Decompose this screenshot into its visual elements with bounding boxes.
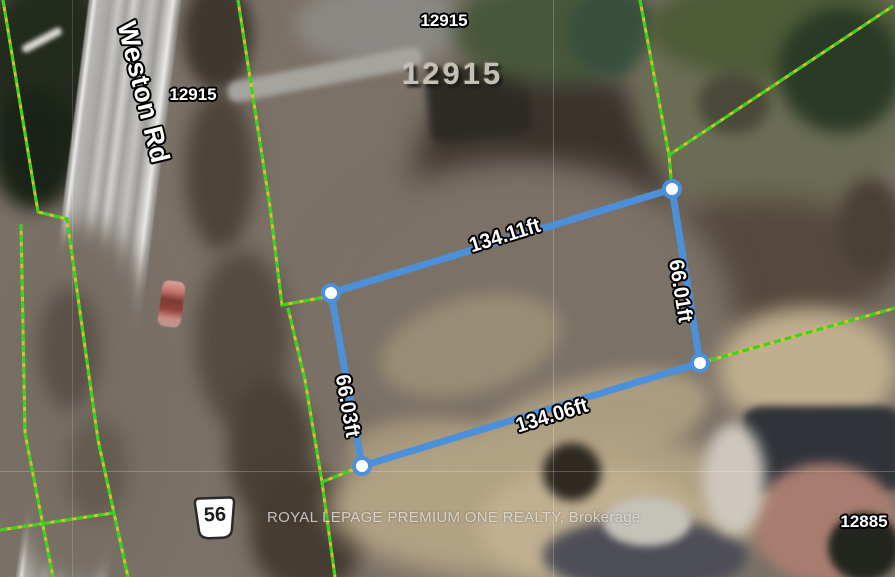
parcel-vertex-handle[interactable]: [323, 285, 339, 301]
route-number: 56: [193, 503, 238, 528]
parcel-vertex-handle[interactable]: [664, 181, 680, 197]
parcel-vertex-handle[interactable]: [692, 355, 708, 371]
address-label-12915-small: 12915: [414, 11, 474, 31]
address-label-12915-roadside: 12915: [163, 85, 223, 105]
address-label-12915-large: 12915: [402, 56, 503, 92]
brokerage-watermark: ROYAL LEPAGE PREMIUM ONE REALTY, Brokera…: [267, 509, 641, 526]
map-canvas[interactable]: Weston Rd 12915 12915 12915 12885 134.11…: [0, 0, 895, 577]
route-shield-56: 56: [192, 494, 238, 542]
address-label-12885: 12885: [833, 512, 895, 532]
parcel-vertex-handle[interactable]: [354, 458, 370, 474]
